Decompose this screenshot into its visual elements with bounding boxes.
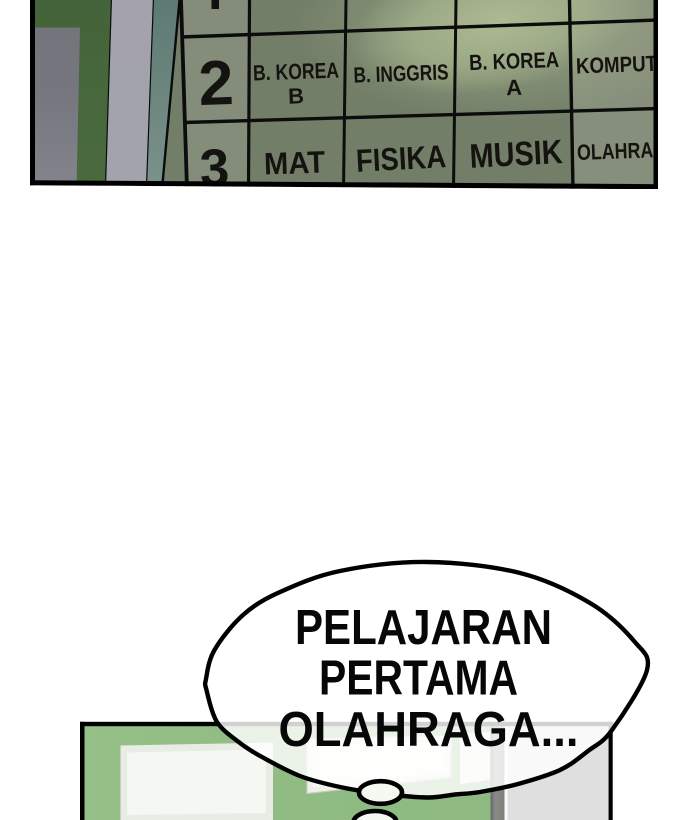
svg-text:PERTAMA: PERTAMA <box>319 651 518 706</box>
svg-text:A: A <box>506 75 523 101</box>
svg-text:MAT: MAT <box>263 144 325 181</box>
svg-text:MUSIK: MUSIK <box>469 133 564 176</box>
svg-text:B. INGGRIS: B. INGGRIS <box>353 59 449 87</box>
svg-text:FISIKA: FISIKA <box>355 138 447 179</box>
svg-text:B: B <box>288 83 305 109</box>
svg-text:2: 2 <box>197 48 234 119</box>
svg-text:OLAHRAGA...: OLAHRAGA... <box>279 702 579 757</box>
svg-text:B. KOREA: B. KOREA <box>253 58 340 86</box>
svg-text:PELAJARAN: PELAJARAN <box>295 600 552 655</box>
svg-text:B. KOREA: B. KOREA <box>469 47 560 75</box>
